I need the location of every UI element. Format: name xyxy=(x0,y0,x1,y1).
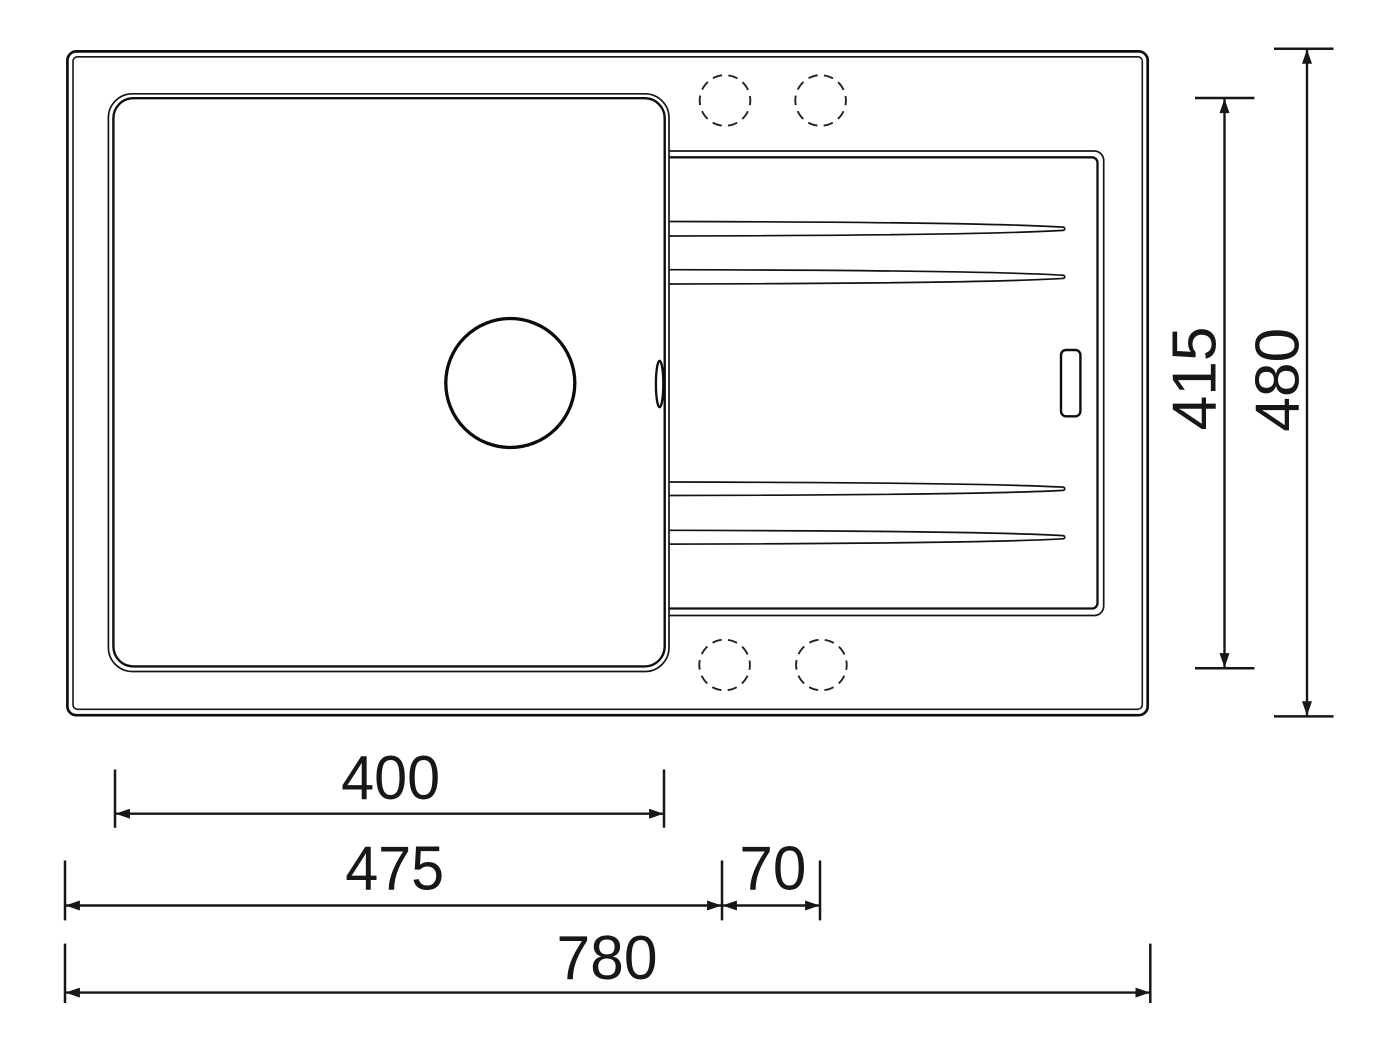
svg-text:480: 480 xyxy=(1243,328,1313,432)
svg-text:475: 475 xyxy=(345,834,444,904)
svg-text:415: 415 xyxy=(1160,326,1230,430)
svg-text:780: 780 xyxy=(557,923,658,993)
svg-text:70: 70 xyxy=(739,834,806,904)
svg-text:400: 400 xyxy=(341,743,440,813)
